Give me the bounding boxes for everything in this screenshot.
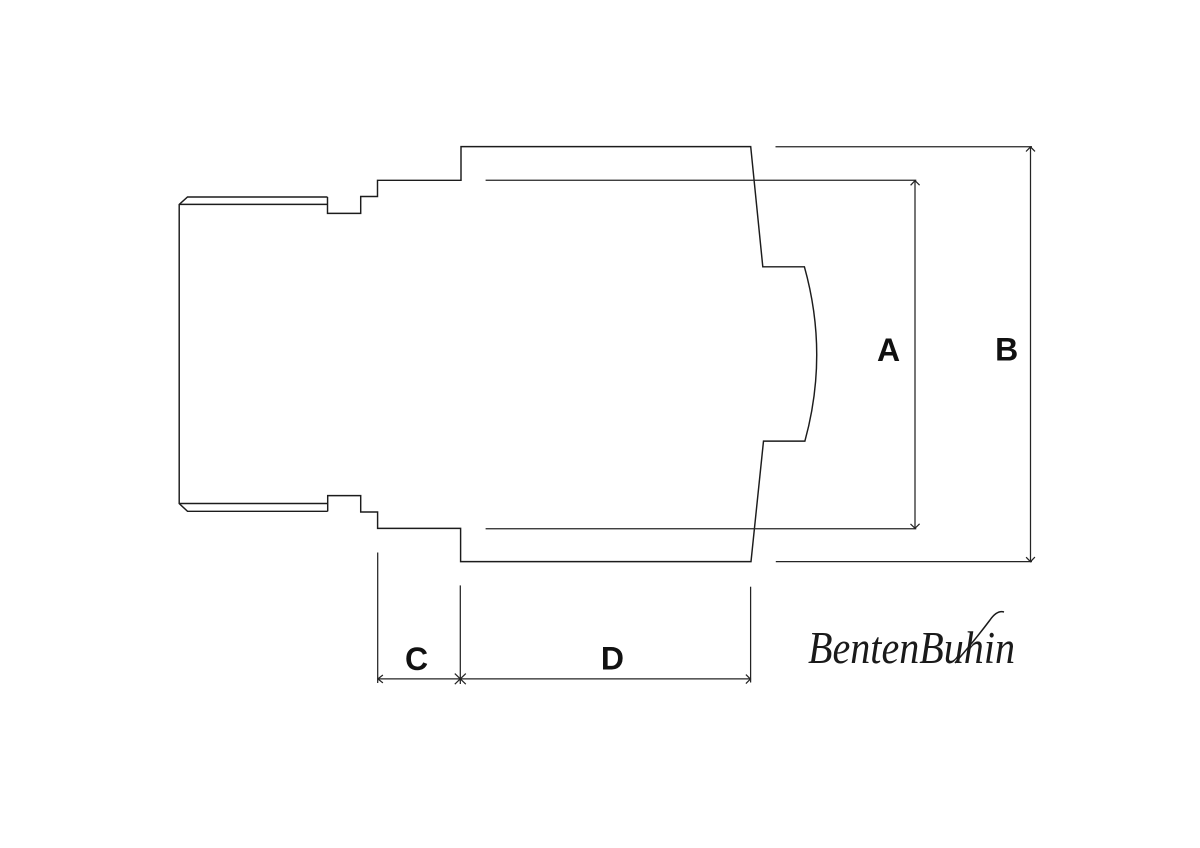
svg-text:B: B: [995, 332, 1018, 368]
svg-text:C: C: [405, 641, 428, 677]
svg-text:A: A: [877, 332, 900, 368]
svg-text:BentenBuhin: BentenBuhin: [808, 623, 1015, 673]
svg-text:D: D: [601, 641, 624, 677]
